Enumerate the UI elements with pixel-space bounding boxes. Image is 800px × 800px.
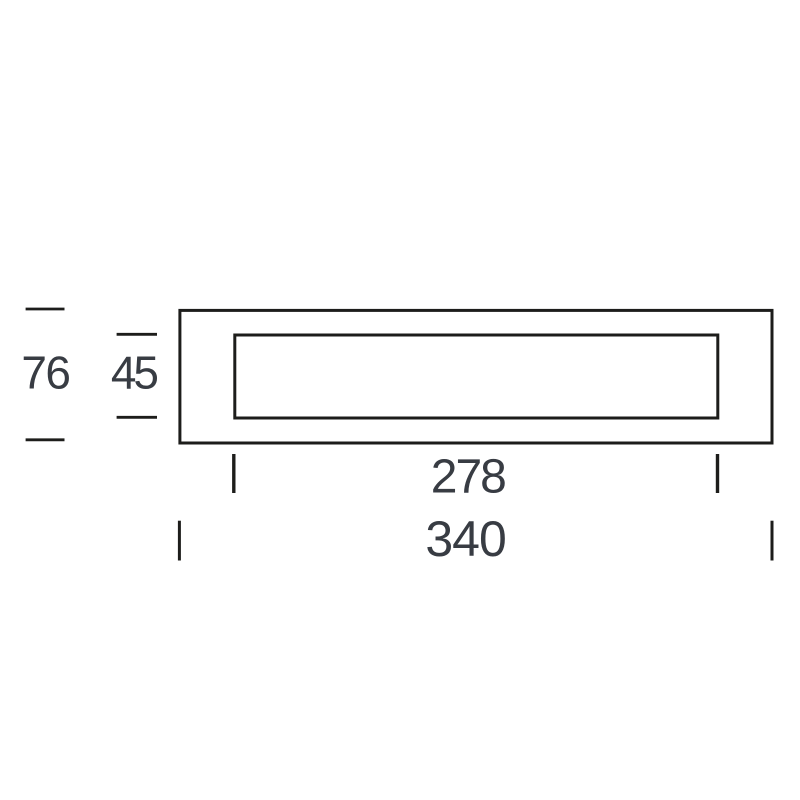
svg-text:340: 340 (425, 511, 505, 567)
svg-text:76: 76 (21, 346, 69, 398)
svg-text:278: 278 (431, 451, 505, 504)
svg-text:45: 45 (111, 346, 158, 398)
